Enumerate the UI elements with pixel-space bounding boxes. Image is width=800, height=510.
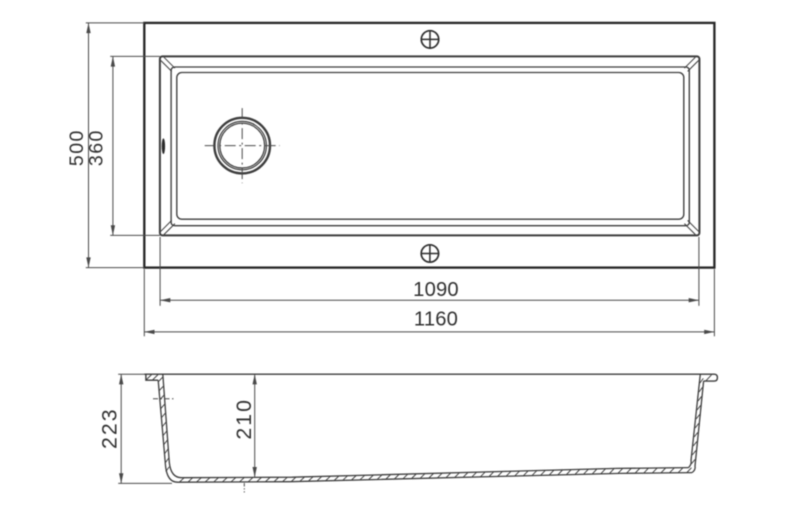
svg-text:360: 360 (86, 129, 108, 166)
svg-text:1090: 1090 (413, 279, 459, 301)
svg-text:210: 210 (232, 398, 256, 440)
svg-text:223: 223 (97, 407, 121, 449)
svg-text:1160: 1160 (414, 309, 458, 331)
